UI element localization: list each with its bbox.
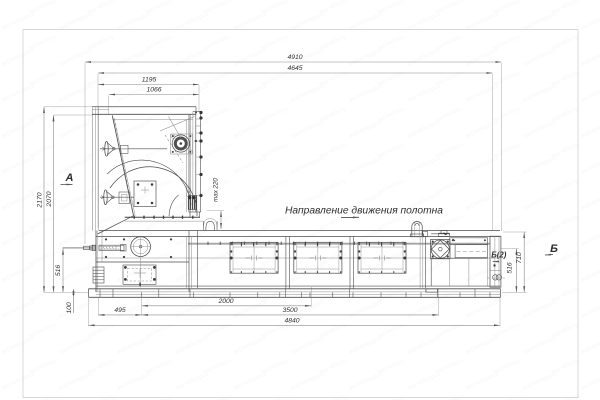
svg-text:Б: Б: [550, 243, 558, 255]
svg-text:516: 516: [55, 265, 62, 277]
svg-text:516: 516: [507, 262, 514, 274]
svg-text:2170: 2170: [36, 192, 43, 208]
svg-text:3500: 3500: [282, 307, 297, 314]
svg-text:А: А: [65, 172, 74, 184]
svg-text:Направление движения полотна: Направление движения полотна: [285, 206, 443, 217]
svg-text:710: 710: [516, 252, 523, 264]
svg-text:100: 100: [66, 302, 73, 314]
svg-text:2070: 2070: [46, 191, 53, 207]
svg-text:1195: 1195: [142, 77, 157, 84]
svg-text:4910: 4910: [287, 54, 302, 61]
svg-text:max 220: max 220: [213, 178, 220, 202]
svg-text:1066: 1066: [146, 87, 161, 94]
svg-text:495: 495: [114, 307, 126, 314]
svg-text:4840: 4840: [284, 317, 299, 324]
svg-text:2000: 2000: [217, 298, 233, 305]
svg-text:4645: 4645: [287, 65, 302, 72]
